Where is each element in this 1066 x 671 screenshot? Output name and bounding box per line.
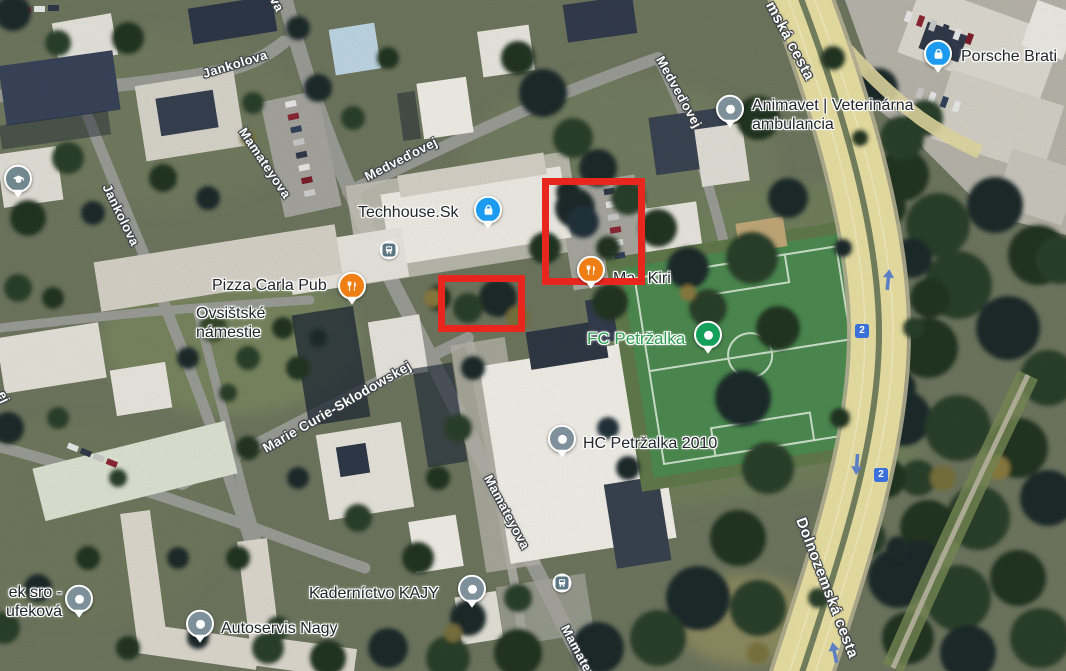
area-label-ovsistske-namestie[interactable]: Ovsištské námestie: [196, 304, 265, 342]
bus-icon: [383, 244, 396, 257]
shopping-bag-icon: [932, 47, 945, 60]
annotation-rectangle-2: [438, 275, 525, 332]
shopping-bag-pin-techhouse[interactable]: [474, 196, 502, 224]
place-pin-fc-petrzalka[interactable]: [694, 321, 722, 349]
poi-label-line1: Animavet | Veterinárna: [752, 96, 914, 115]
poi-label-animavet[interactable]: Animavet | Veterinárna ambulancia: [752, 96, 914, 134]
poi-label-autoservis-nagy[interactable]: Autoservis Nagy: [221, 619, 338, 638]
pin-dot: [558, 434, 567, 443]
place-pin-autoservis-nagy[interactable]: [186, 610, 214, 638]
poi-label-techhouse[interactable]: Techhouse.Sk: [358, 203, 459, 222]
route-badge-2-north: 2: [855, 324, 869, 338]
pin-dot: [704, 330, 713, 339]
pin-dot: [468, 584, 477, 593]
pin-dot: [75, 594, 84, 603]
place-pin-kadernictvo-kajy[interactable]: [458, 575, 486, 603]
transit-stop-icon-1[interactable]: [380, 241, 399, 260]
fork-knife-icon: [346, 279, 359, 292]
satellite-map-viewport[interactable]: Jankolova Jankolova Mamateyova Medveďove…: [0, 0, 1066, 671]
poi-label-line2: ambulancia: [752, 115, 914, 134]
place-pin-hc-petrzalka[interactable]: [548, 425, 576, 453]
poi-label-line2: ufeková: [0, 602, 62, 621]
poi-label-line1: ek sro -: [0, 583, 62, 602]
pin-dot: [726, 104, 735, 113]
shopping-bag-icon: [482, 203, 495, 216]
shopping-bag-pin-porsche[interactable]: [924, 40, 952, 68]
graduation-cap-icon: [12, 172, 25, 185]
poi-label-hc-petrzalka[interactable]: HC Petržalka 2010: [583, 434, 717, 453]
place-pin-ek-sro[interactable]: [65, 585, 93, 613]
poi-label-fc-petrzalka[interactable]: FC Petržalka: [587, 329, 685, 348]
traffic-direction-arrow-down-icon: [851, 449, 864, 476]
transit-stop-icon-2[interactable]: [553, 574, 572, 593]
poi-label-ek-sro[interactable]: ek sro - ufeková: [0, 583, 62, 621]
area-label-line2: námestie: [196, 323, 265, 342]
poi-label-kadernictvo-kajy[interactable]: Kaderníctvo KAJY: [309, 584, 439, 603]
bus-icon: [556, 577, 569, 590]
pin-dot: [196, 619, 205, 628]
poi-label-pizza-carla-pub[interactable]: Pizza Carla Pub: [212, 276, 327, 295]
route-badge-2-south: 2: [874, 468, 888, 482]
fork-knife-icon: [585, 263, 598, 276]
area-label-line1: Ovsištské: [196, 304, 265, 323]
restaurant-pin-ma-i-kiri[interactable]: [577, 256, 605, 284]
place-pin-animavet[interactable]: [716, 95, 744, 123]
poi-label-porsche[interactable]: Porsche Brati: [961, 47, 1057, 66]
restaurant-pin-pizza-carla[interactable]: [338, 272, 366, 300]
education-pin[interactable]: [4, 165, 32, 193]
